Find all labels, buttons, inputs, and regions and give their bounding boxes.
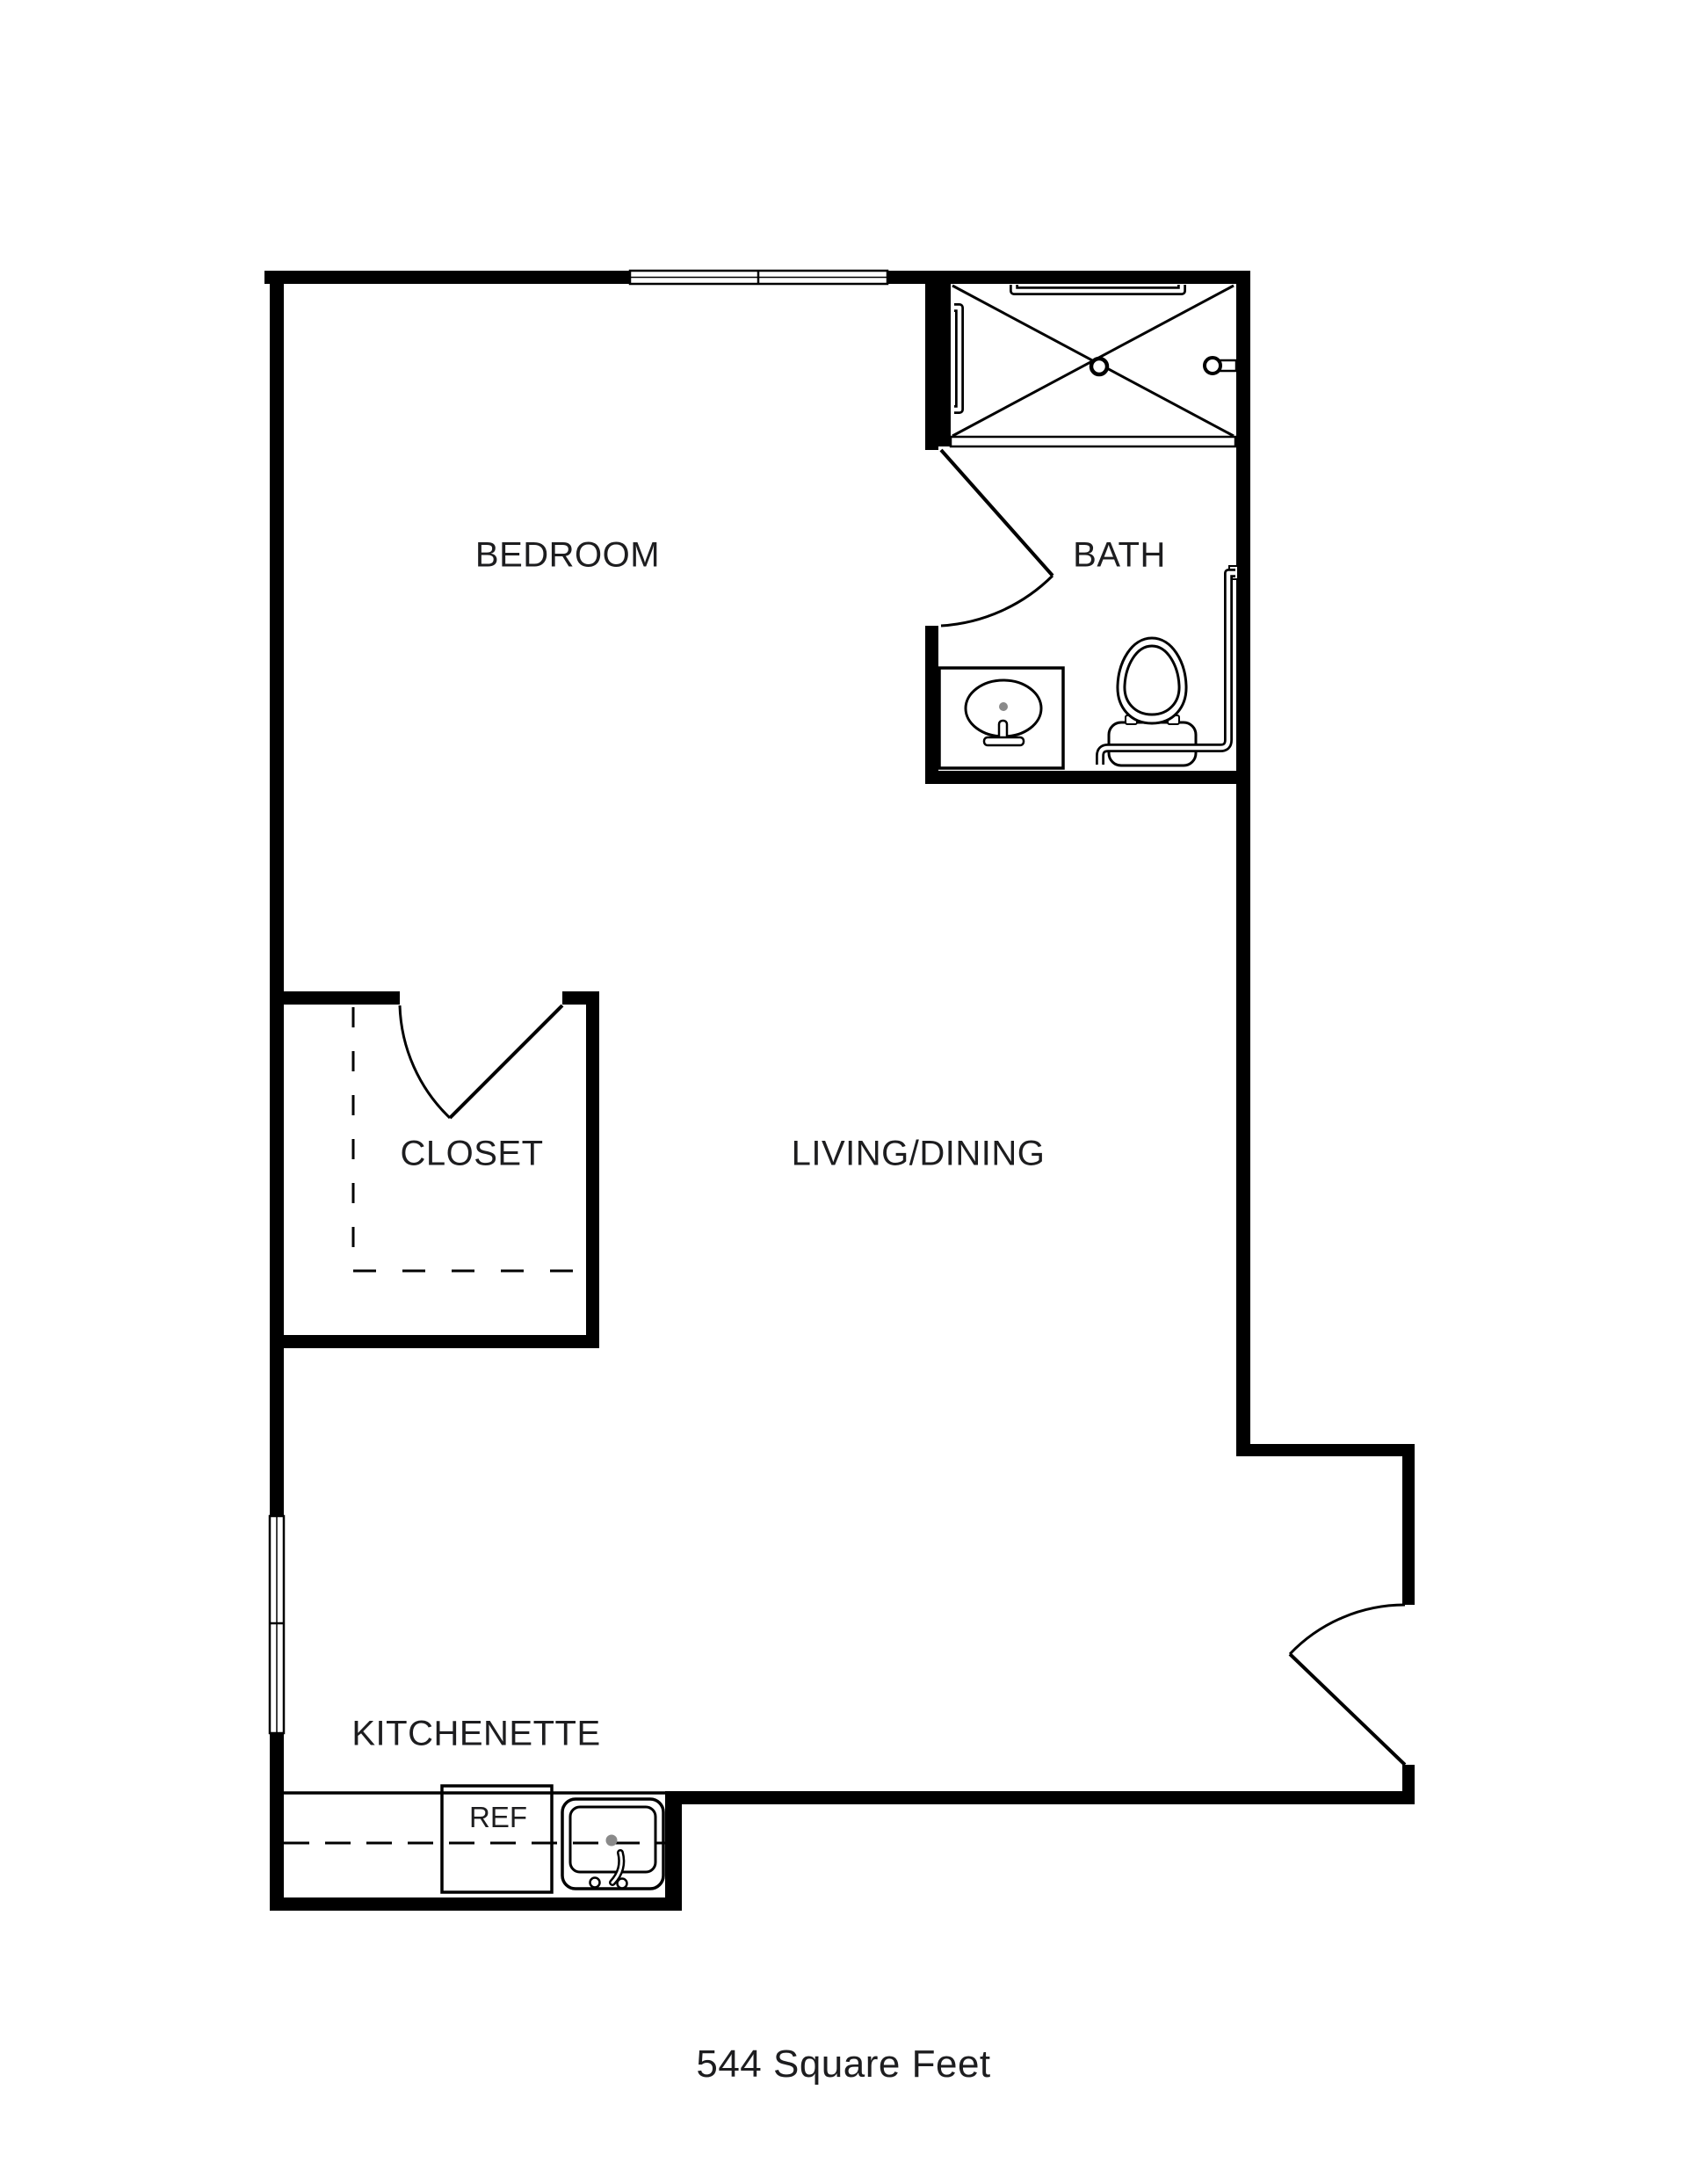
wall-closet-top-left <box>270 991 400 1005</box>
toilet-seat-outer <box>1118 638 1186 723</box>
exterior-walls <box>264 271 1415 1911</box>
refrigerator-label: REF <box>469 1801 527 1834</box>
entry-door <box>1290 1605 1405 1765</box>
wall-entry-upper <box>1402 1444 1415 1605</box>
wall-bottom-right <box>665 1791 1415 1804</box>
wall-right-main <box>1236 271 1250 1456</box>
bath-label: BATH <box>1073 536 1166 576</box>
shower-valve-icon <box>1205 358 1236 374</box>
wall-bath-bottom <box>925 771 1250 784</box>
wall-closet-bottom <box>270 1335 599 1348</box>
wall-bath-west-upper <box>925 271 938 450</box>
window-top <box>630 271 887 284</box>
wall-bottom-kitchen <box>270 1897 682 1911</box>
closet-label: CLOSET <box>400 1135 543 1174</box>
kitchen-sink-drain-icon <box>606 1835 618 1847</box>
shower-grab-bar-left <box>954 308 959 410</box>
living-dining-label: LIVING/DINING <box>792 1135 1046 1174</box>
wall-closet-right <box>586 991 599 1348</box>
shower-threshold <box>951 437 1235 446</box>
wall-left-upper-segment <box>270 271 284 1516</box>
kitchen-faucet-icon <box>590 1853 627 1889</box>
closet-door <box>400 1005 562 1118</box>
bathroom-sink <box>939 668 1063 768</box>
shower <box>951 285 1236 446</box>
wall-top-left-segment <box>264 271 630 284</box>
sink-drain-icon <box>999 702 1008 711</box>
floor-plan: BEDROOM BATH CLOSET LIVING/DINING KITCHE… <box>0 0 1687 2184</box>
bath-door <box>941 450 1053 626</box>
wall-kitchen-step <box>665 1791 682 1911</box>
wall-bath-west-lower <box>925 626 938 784</box>
bedroom-label: BEDROOM <box>475 536 660 576</box>
doors <box>400 450 1405 1765</box>
wall-top-right-segment <box>887 271 1250 284</box>
area-label: 544 Square Feet <box>696 2043 990 2086</box>
window-left <box>270 1516 284 1733</box>
wall-notch-horizontal <box>1236 1444 1415 1456</box>
shower-drain-icon <box>1091 359 1107 374</box>
shower-edge-strip <box>938 284 951 446</box>
wall-left-lower-segment <box>270 1733 284 1911</box>
shower-grab-bar-top <box>1014 285 1182 291</box>
floor-plan-drawing <box>0 0 1687 2184</box>
kitchenette-label: KITCHENETTE <box>351 1715 600 1754</box>
